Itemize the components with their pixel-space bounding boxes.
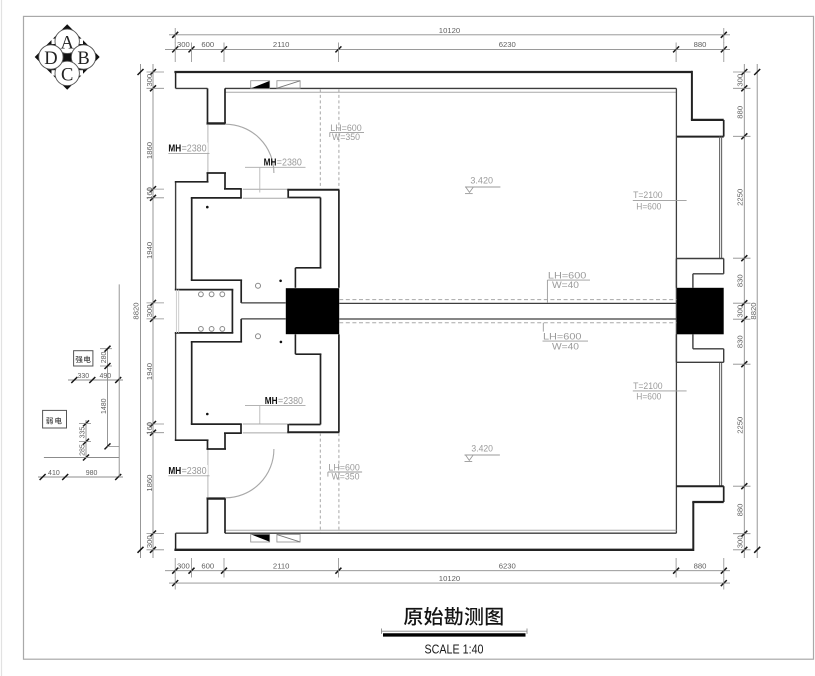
- svg-text:8820: 8820: [749, 302, 758, 319]
- svg-text:880: 880: [694, 562, 707, 571]
- svg-text:B: B: [77, 49, 89, 69]
- svg-text:3.420: 3.420: [471, 444, 493, 454]
- svg-text:8820: 8820: [132, 302, 141, 319]
- svg-text:2110: 2110: [273, 562, 290, 571]
- svg-text:160: 160: [145, 187, 154, 200]
- svg-text:2250: 2250: [736, 189, 745, 206]
- svg-text:335: 335: [79, 427, 86, 439]
- svg-text:300: 300: [177, 562, 190, 571]
- svg-text:600: 600: [201, 562, 214, 571]
- svg-text:300: 300: [145, 74, 154, 87]
- svg-text:285: 285: [79, 444, 86, 456]
- svg-text:490: 490: [99, 373, 111, 380]
- svg-text:H=600: H=600: [636, 201, 661, 211]
- svg-text:SCALE 1:40: SCALE 1:40: [425, 642, 484, 657]
- svg-text:D: D: [44, 49, 57, 69]
- svg-text:330: 330: [77, 373, 89, 380]
- svg-text:830: 830: [736, 274, 745, 287]
- svg-text:280: 280: [101, 351, 108, 363]
- svg-text:A: A: [61, 33, 75, 53]
- svg-text:2110: 2110: [273, 40, 290, 49]
- svg-text:W=350: W=350: [332, 472, 360, 482]
- svg-text:10120: 10120: [439, 26, 460, 35]
- svg-text:300: 300: [177, 40, 190, 49]
- svg-text:880: 880: [736, 106, 745, 119]
- svg-text:160: 160: [145, 422, 154, 435]
- svg-text:1940: 1940: [145, 363, 154, 380]
- svg-text:6230: 6230: [499, 562, 516, 571]
- svg-text:C: C: [61, 65, 73, 85]
- svg-text:300: 300: [145, 304, 154, 317]
- svg-text:1480: 1480: [101, 398, 108, 414]
- svg-text:W=40: W=40: [552, 341, 579, 351]
- svg-text:300: 300: [736, 74, 745, 87]
- svg-text:1860: 1860: [145, 475, 154, 492]
- svg-text:410: 410: [48, 470, 60, 477]
- svg-text:LH=600: LH=600: [548, 271, 587, 281]
- svg-text:830: 830: [736, 335, 745, 348]
- svg-text:1860: 1860: [145, 142, 154, 159]
- svg-text:2250: 2250: [736, 417, 745, 434]
- svg-text:W=350: W=350: [332, 132, 360, 142]
- svg-text:300: 300: [736, 305, 745, 318]
- svg-text:1940: 1940: [145, 242, 154, 259]
- svg-text:LH=600: LH=600: [543, 332, 582, 342]
- svg-text:T=2100: T=2100: [633, 190, 663, 200]
- svg-text:6230: 6230: [499, 40, 516, 49]
- svg-text:T=2100: T=2100: [633, 381, 663, 391]
- svg-text:W=40: W=40: [552, 280, 579, 290]
- svg-text:600: 600: [201, 40, 214, 49]
- svg-text:880: 880: [694, 40, 707, 49]
- svg-text:10120: 10120: [439, 574, 460, 583]
- svg-text:3.420: 3.420: [470, 176, 493, 186]
- svg-text:300: 300: [736, 535, 745, 548]
- svg-text:H=600: H=600: [636, 392, 661, 402]
- svg-text:300: 300: [145, 535, 154, 548]
- svg-text:880: 880: [736, 504, 745, 517]
- svg-text:980: 980: [86, 470, 98, 477]
